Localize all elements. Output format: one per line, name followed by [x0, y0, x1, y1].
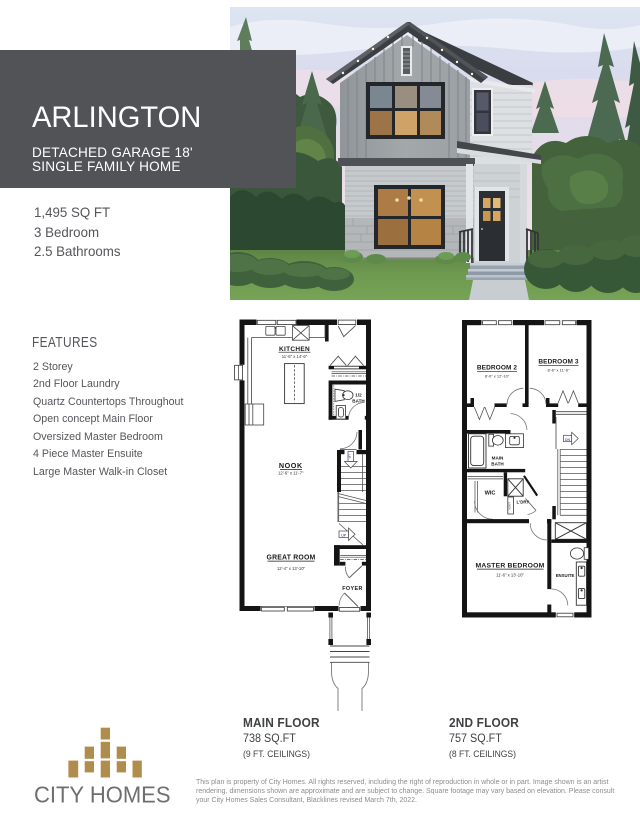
svg-text:8'-6" x 11'-6": 8'-6" x 11'-6" — [547, 368, 570, 373]
svg-text:BEDROOM 3: BEDROOM 3 — [538, 359, 579, 366]
svg-text:NOOK: NOOK — [279, 461, 303, 470]
svg-text:11'-6" x 13'-10": 11'-6" x 13'-10" — [496, 573, 524, 578]
svg-text:12'-6" x 11'-7": 12'-6" x 11'-7" — [278, 471, 304, 476]
svg-text:12'-4" x 13'-10": 12'-4" x 13'-10" — [277, 566, 306, 571]
svg-text:L'DRY: L'DRY — [517, 500, 530, 505]
svg-text:CITY HOMES: CITY HOMES — [34, 782, 171, 808]
svg-text:BEDROOM 2: BEDROOM 2 — [477, 365, 518, 372]
svg-text:ENSUITE: ENSUITE — [556, 573, 575, 578]
svg-text:MAIN: MAIN — [492, 456, 504, 461]
svg-text:DN: DN — [565, 438, 571, 442]
svg-text:UP: UP — [347, 454, 351, 458]
svg-text:BATH: BATH — [491, 462, 504, 467]
svg-text:11'-6" x 14'-6": 11'-6" x 14'-6" — [282, 354, 308, 359]
svg-text:UP: UP — [341, 534, 347, 538]
svg-text:LINEN: LINEN — [508, 502, 512, 510]
svg-text:WIC: WIC — [485, 491, 496, 497]
svg-text:GREAT ROOM: GREAT ROOM — [267, 555, 316, 562]
svg-text:1/2: 1/2 — [355, 393, 362, 398]
svg-text:MASTER BEDROOM: MASTER BEDROOM — [476, 563, 545, 570]
svg-text:FOYER: FOYER — [342, 586, 363, 592]
svg-text:8'-0" x 12'-10": 8'-0" x 12'-10" — [485, 374, 510, 379]
